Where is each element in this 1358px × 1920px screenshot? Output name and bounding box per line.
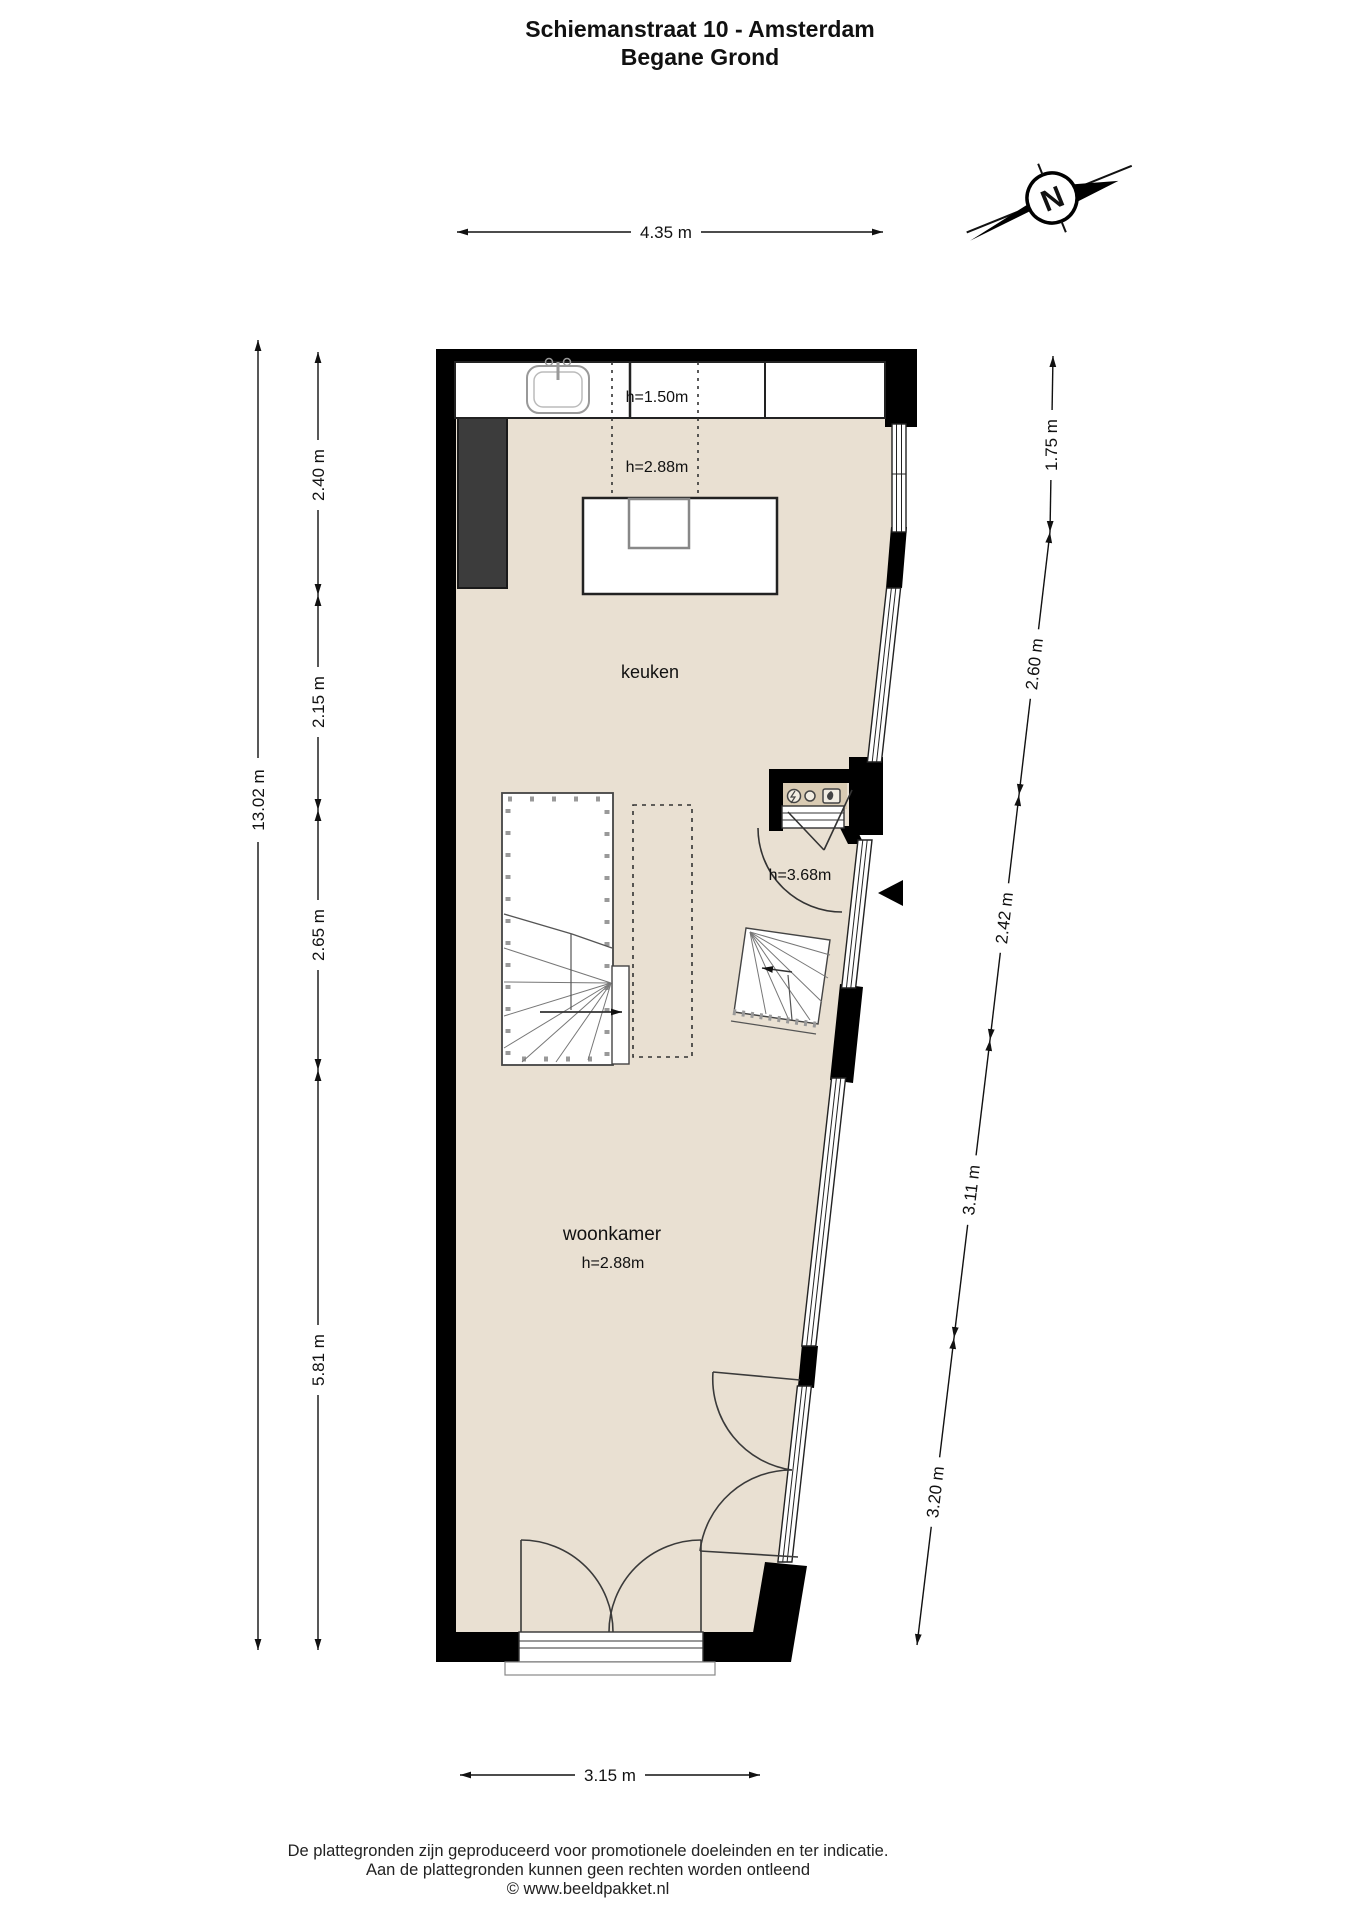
- wall-niche-left: [769, 769, 783, 831]
- stairwell: [502, 793, 629, 1065]
- kitchen-island: [583, 498, 777, 594]
- dim-bottom: 3.15 m: [584, 1766, 636, 1785]
- entry-arrow-icon: [878, 880, 903, 906]
- front-door: [782, 806, 844, 828]
- dim-right-seg-0: 1.75 m: [1042, 419, 1061, 471]
- wall-bottom-right: [701, 1632, 757, 1662]
- wall-entry-block: [849, 757, 883, 835]
- north-arrow: N: [953, 131, 1146, 266]
- gas-meter-icon: [823, 789, 840, 803]
- footer-disclaimer-1: De plattegronden zijn geproduceerd voor …: [288, 1842, 889, 1861]
- floorplan-page: Schiemanstraat 10 - Amsterdam Begane Gro…: [0, 0, 1358, 1920]
- kitchen-height-label: h=2.88m: [626, 459, 689, 476]
- living-height-label: h=2.88m: [582, 1255, 645, 1272]
- meter-icon: [805, 791, 815, 801]
- floor-plan-drawing: h=1.50m h=2.88m keuken h=3.68m woonkamer…: [0, 0, 1358, 1920]
- wall-top: [436, 349, 917, 363]
- dim-left-seg-3: 5.81 m: [309, 1334, 328, 1386]
- outside-threshold: [505, 1662, 715, 1675]
- hall-height-label: h=3.68m: [769, 867, 832, 884]
- window-1: [892, 424, 906, 532]
- dim-left-seg-0: 2.40 m: [309, 449, 328, 501]
- footer-copyright: © www.beeldpakket.nl: [507, 1880, 670, 1899]
- dim-top: 4.35 m: [640, 223, 692, 242]
- living-room-label: woonkamer: [562, 1224, 662, 1245]
- counter-height-label: h=1.50m: [626, 389, 689, 406]
- wall-left: [436, 349, 456, 1662]
- wall-top-right-corner: [885, 349, 917, 427]
- kitchen-label: keuken: [621, 662, 679, 682]
- sink-icon: [527, 359, 589, 414]
- wall-bottom-left: [436, 1632, 521, 1662]
- dim-left-total: 13.02 m: [249, 769, 268, 830]
- electric-meter-icon: [788, 790, 801, 804]
- dim-left-seg-1: 2.15 m: [309, 676, 328, 728]
- footer-disclaimer-2: Aan de plattegronden kunnen geen rechten…: [366, 1861, 810, 1880]
- dim-left-seg-2: 2.65 m: [309, 909, 328, 961]
